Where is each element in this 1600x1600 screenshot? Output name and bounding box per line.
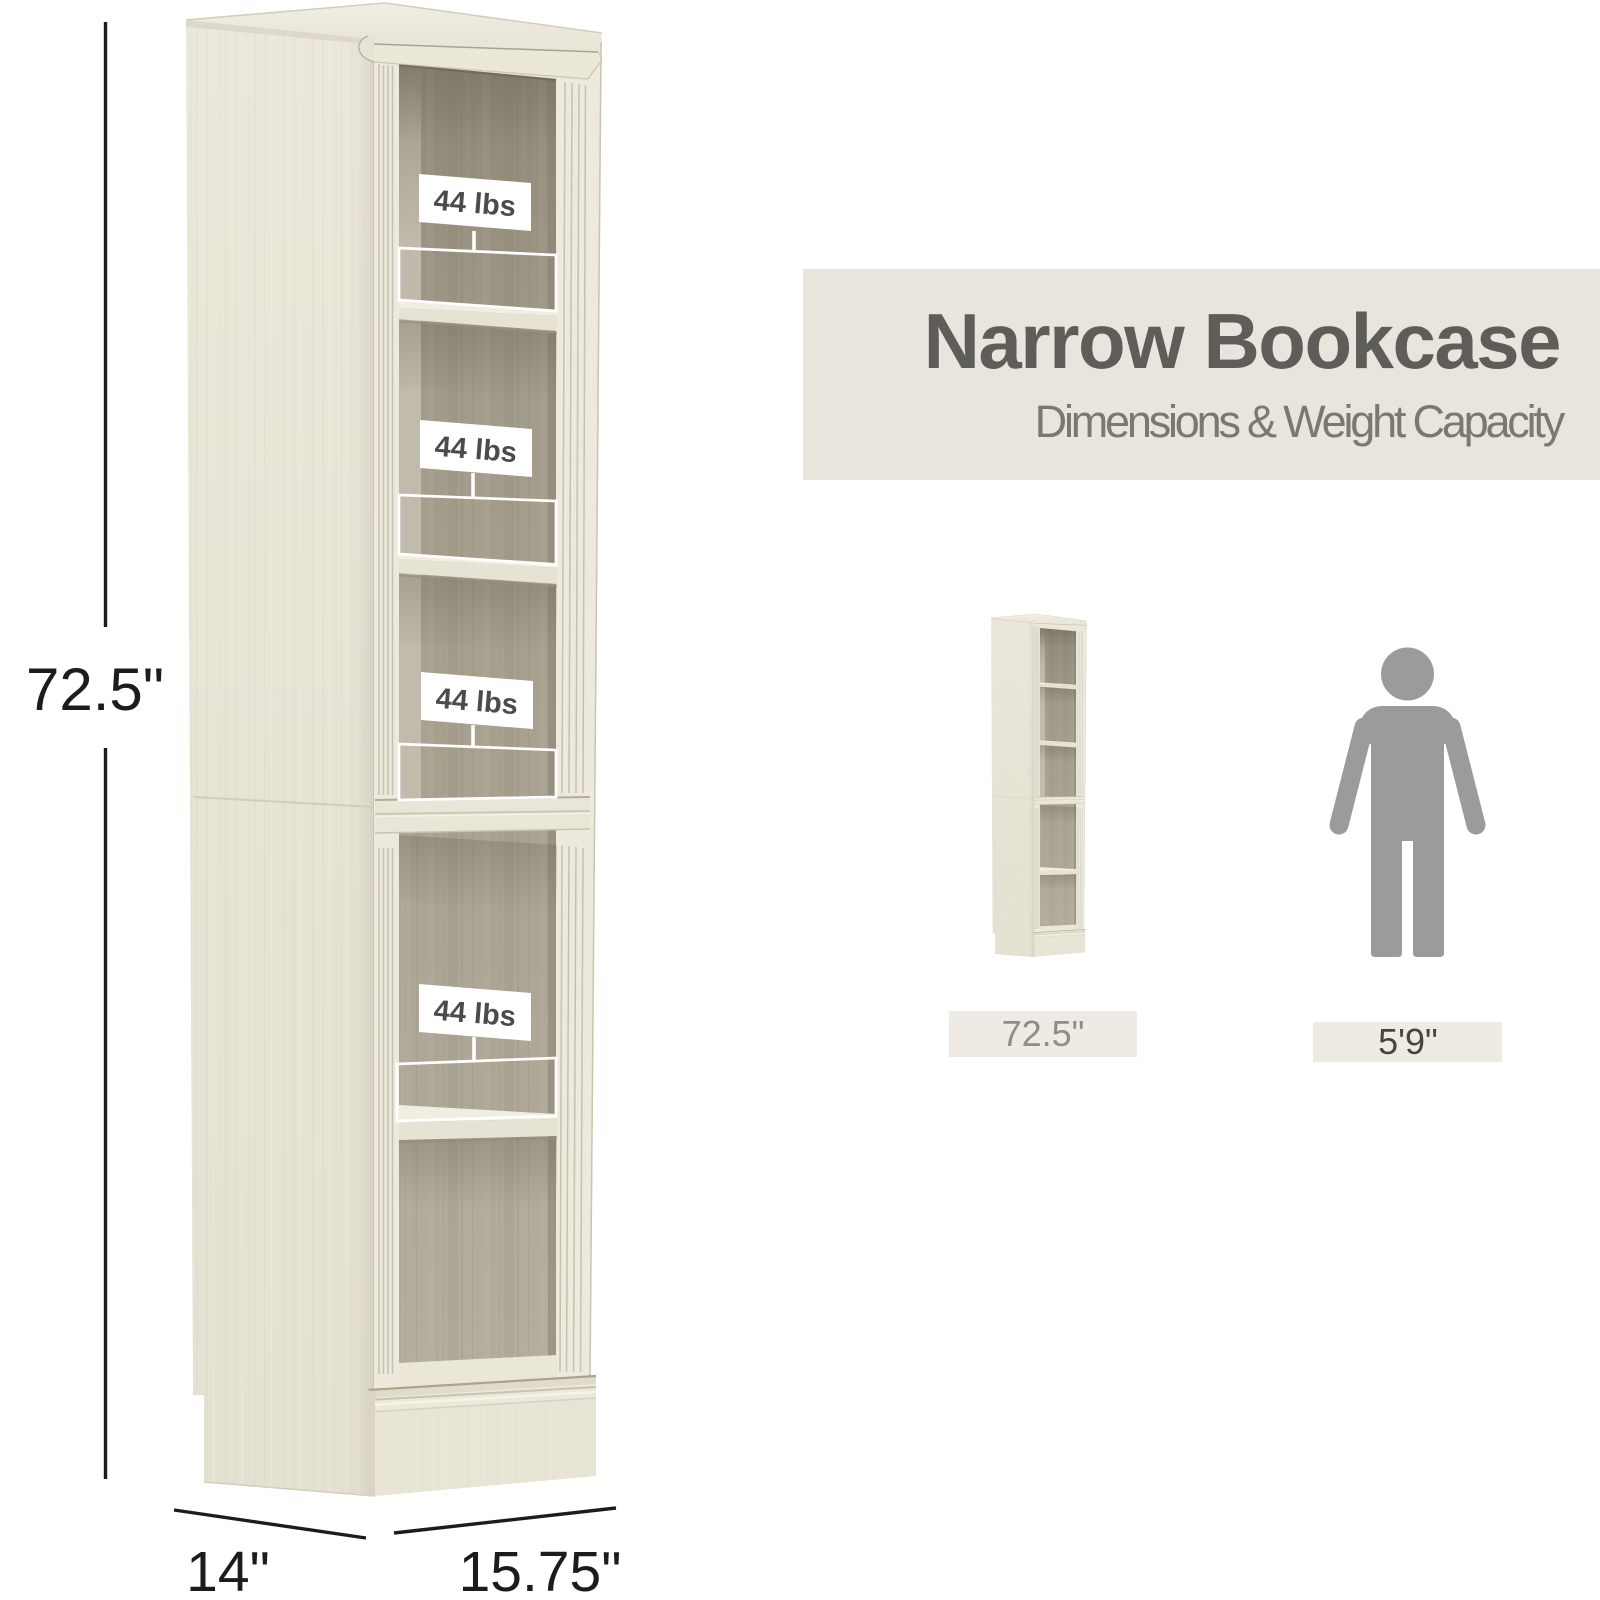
svg-text:Narrow Bookcase: Narrow Bookcase bbox=[924, 297, 1560, 385]
svg-text:14": 14" bbox=[186, 1540, 270, 1600]
svg-text:44 lbs: 44 lbs bbox=[435, 683, 520, 721]
svg-text:44 lbs: 44 lbs bbox=[433, 995, 518, 1033]
svg-text:15.75": 15.75" bbox=[459, 1540, 622, 1600]
svg-text:Dimensions & Weight Capacity: Dimensions & Weight Capacity bbox=[1035, 396, 1566, 447]
svg-text:44 lbs: 44 lbs bbox=[434, 431, 519, 469]
svg-text:72.5": 72.5" bbox=[26, 656, 164, 723]
svg-text:72.5": 72.5" bbox=[1002, 1013, 1085, 1054]
svg-text:44 lbs: 44 lbs bbox=[433, 185, 518, 223]
svg-text:5'9": 5'9" bbox=[1378, 1021, 1438, 1062]
